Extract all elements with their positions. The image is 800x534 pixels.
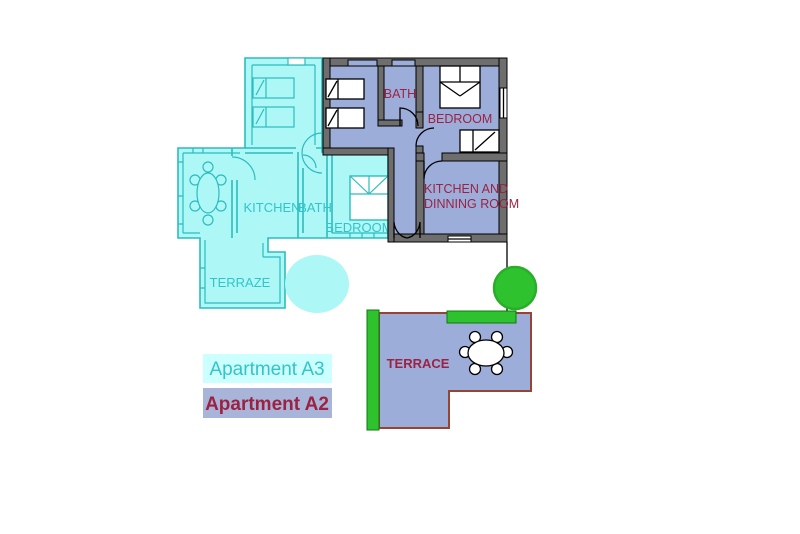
a3-kitchen-label: KITCHEN <box>243 200 300 215</box>
a2-terrace-label: TERRACE <box>387 356 450 371</box>
a2-bath-label: BATH <box>384 87 416 101</box>
legend: Apartment A3 Apartment A2 <box>203 354 332 418</box>
planter-bar-icon <box>447 311 516 323</box>
legend-a2-label: Apartment A2 <box>205 394 329 415</box>
a2-kitchen-label-line1: KITCHEN AND <box>424 182 508 196</box>
floor-plan-canvas: KITCHEN BATH BEDROOM TERRAZE <box>0 0 800 534</box>
a2-double-bed-icon <box>440 66 480 108</box>
a2-bed-icon <box>326 108 364 128</box>
apartment-a2-terrace: TERRACE <box>367 242 536 430</box>
a3-double-bed-icon <box>350 176 388 220</box>
floor-plan-image: KITCHEN BATH BEDROOM TERRAZE <box>0 0 800 534</box>
a2-closet-icon <box>460 130 499 152</box>
a3-bedroom-label: BEDROOM <box>325 220 392 235</box>
legend-a3-label: Apartment A3 <box>209 359 324 380</box>
a2-bedroom-label: BEDROOM <box>428 112 493 126</box>
a3-terrace-label: TERRAZE <box>210 275 271 290</box>
a3-bath-label: BATH <box>298 200 332 215</box>
a3-bush-icon <box>285 255 349 313</box>
tree-icon <box>494 267 536 309</box>
a2-kitchen-label-line2: DINNING ROOM <box>424 197 519 211</box>
a3-window-icon <box>288 58 305 65</box>
a2-bed-icon <box>326 79 364 99</box>
planter-bar-icon <box>367 310 379 430</box>
